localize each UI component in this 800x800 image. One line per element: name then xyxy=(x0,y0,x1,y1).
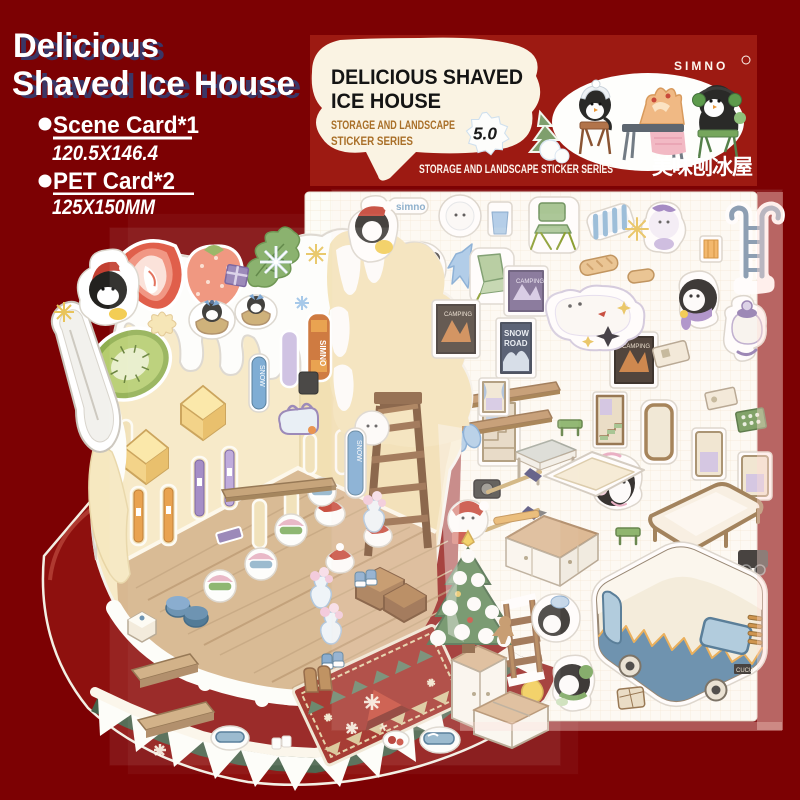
svg-text:120.5X146.4: 120.5X146.4 xyxy=(52,141,158,165)
svg-text:PET Card*2: PET Card*2 xyxy=(53,168,175,195)
svg-text:Delicious: Delicious xyxy=(13,27,159,65)
svg-text:SIMNO: SIMNO xyxy=(674,59,728,73)
svg-text:Shaved Ice House: Shaved Ice House xyxy=(12,65,295,103)
svg-text:STICKER SERIES: STICKER SERIES xyxy=(331,134,413,148)
svg-text:DELICIOUS SHAVED: DELICIOUS SHAVED xyxy=(331,65,523,89)
svg-text:5.0: 5.0 xyxy=(473,124,497,144)
svg-text:125X150MM: 125X150MM xyxy=(52,195,156,219)
svg-text:美味刨冰屋: 美味刨冰屋 xyxy=(652,155,753,179)
svg-text:ICE HOUSE: ICE HOUSE xyxy=(331,89,441,113)
svg-text:Scene Card*1: Scene Card*1 xyxy=(53,112,199,139)
svg-text:STORAGE AND LANDSCAPE STICKER: STORAGE AND LANDSCAPE STICKER SERIES xyxy=(419,162,613,176)
svg-text:STORAGE AND LANDSCAPE: STORAGE AND LANDSCAPE xyxy=(331,118,455,132)
